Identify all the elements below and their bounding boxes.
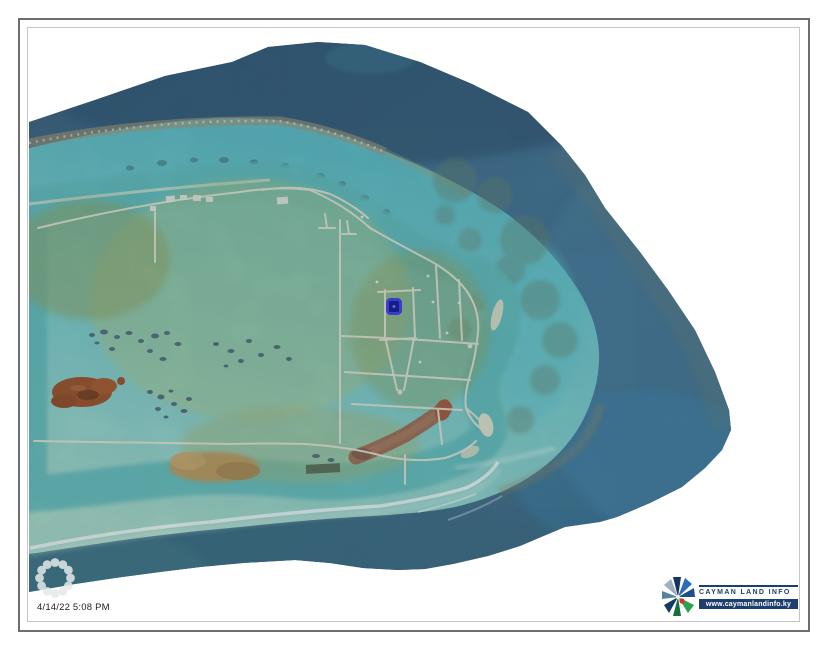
map-canvas[interactable] — [0, 0, 829, 650]
cayman-land-info-starburst-icon — [661, 575, 697, 619]
map-export-page: 4/14/22 5:08 PM CAYMAN LAND INFO www.cay… — [0, 0, 829, 650]
brand-title: CAYMAN LAND INFO — [699, 589, 798, 596]
brand-rule — [699, 585, 798, 587]
brand-website: www.caymanlandinfo.ky — [699, 599, 798, 610]
cayman-land-info-logo: CAYMAN LAND INFO www.caymanlandinfo.ky — [661, 575, 798, 619]
timestamp: 4/14/22 5:08 PM — [37, 602, 110, 613]
grain-light-texture — [0, 0, 829, 650]
